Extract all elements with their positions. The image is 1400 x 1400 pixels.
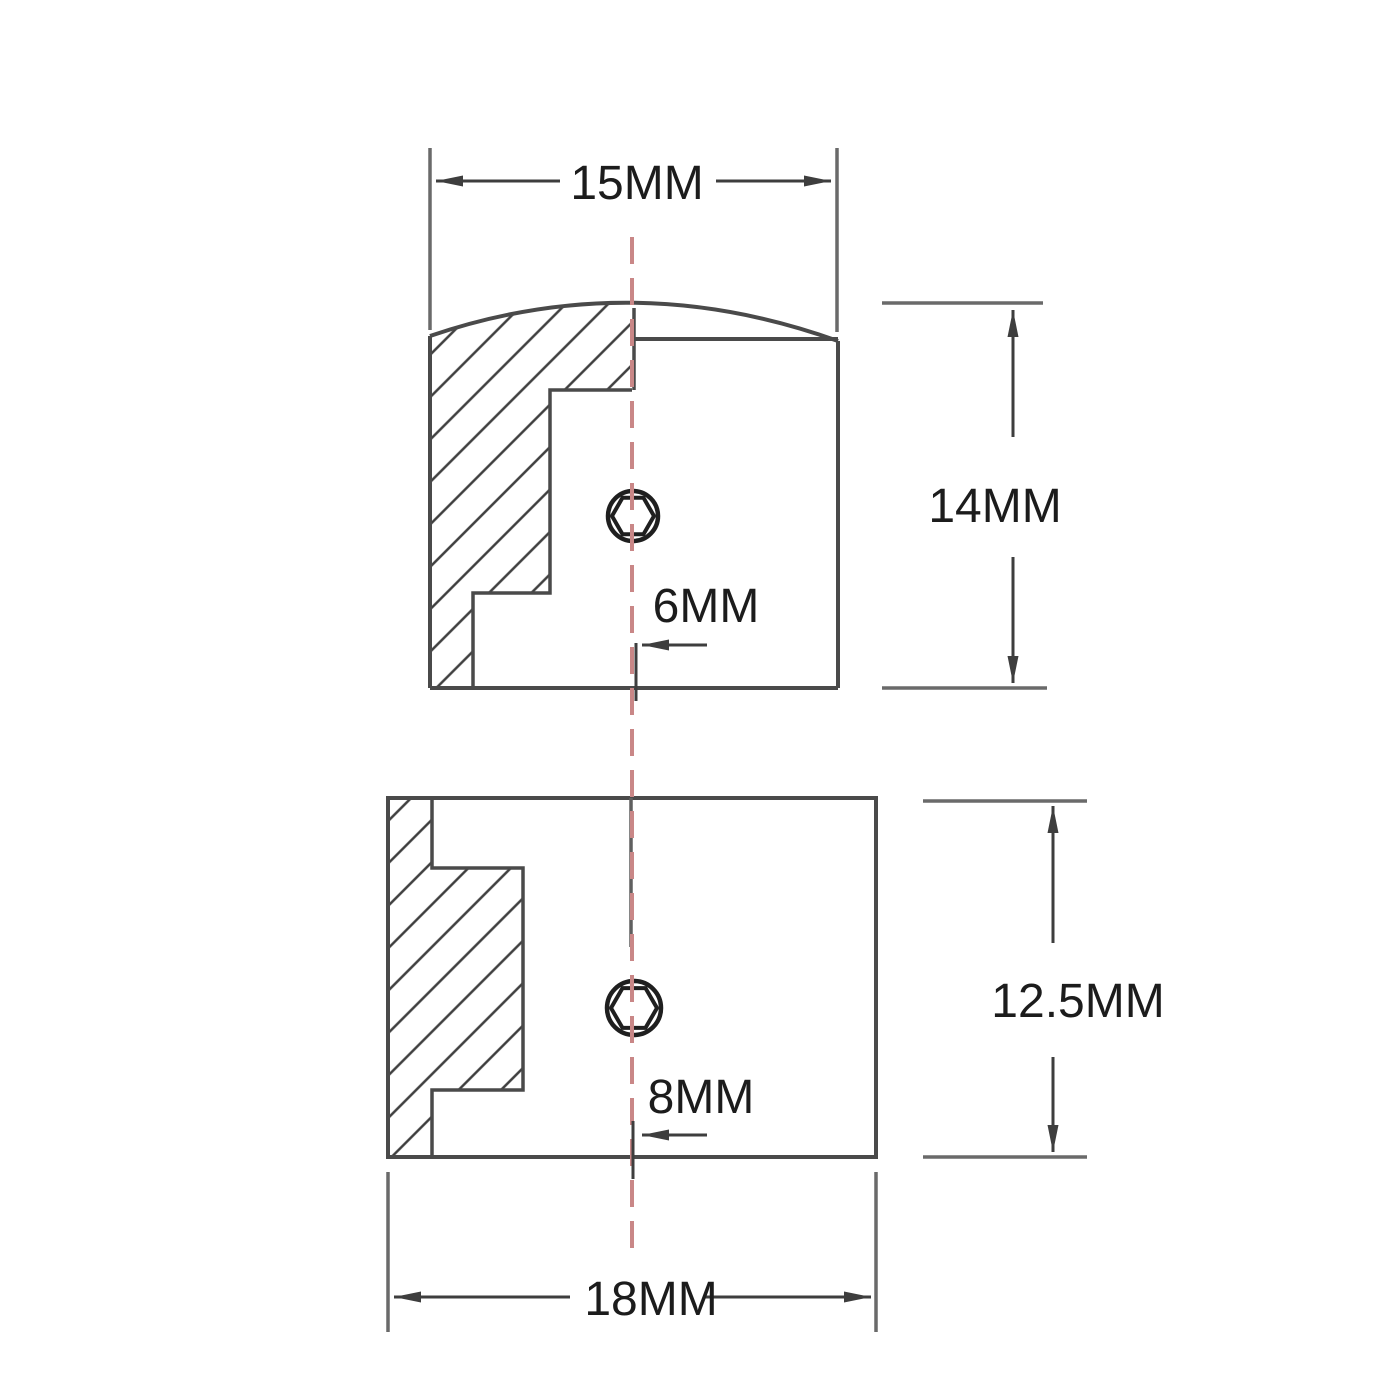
top-bore-dimension-label: 6MM <box>653 580 760 633</box>
technical-drawing-canvas: 15MM 14MM 6MM 12.5MM 8MM <box>0 0 1400 1400</box>
bottom-height-dimension-label: 12.5MM <box>991 975 1164 1028</box>
bottom-bore-dimension-label: 8MM <box>648 1071 755 1124</box>
top-width-dimension-label: 15MM <box>570 157 703 210</box>
top-knob-hatch-area <box>430 303 632 688</box>
dimension-top-bore: 6MM <box>636 580 759 701</box>
knob-dimension-drawing: 15MM 14MM 6MM 12.5MM 8MM <box>0 0 1400 1400</box>
bottom-knob-hatch-area <box>388 798 523 1157</box>
dimension-top-height: 14MM <box>882 303 1062 688</box>
dimension-bottom-bore: 8MM <box>633 1071 754 1179</box>
top-height-dimension-label: 14MM <box>928 480 1061 533</box>
bottom-width-dimension-label: 18MM <box>584 1273 717 1326</box>
dimension-bottom-height: 12.5MM <box>923 801 1165 1157</box>
